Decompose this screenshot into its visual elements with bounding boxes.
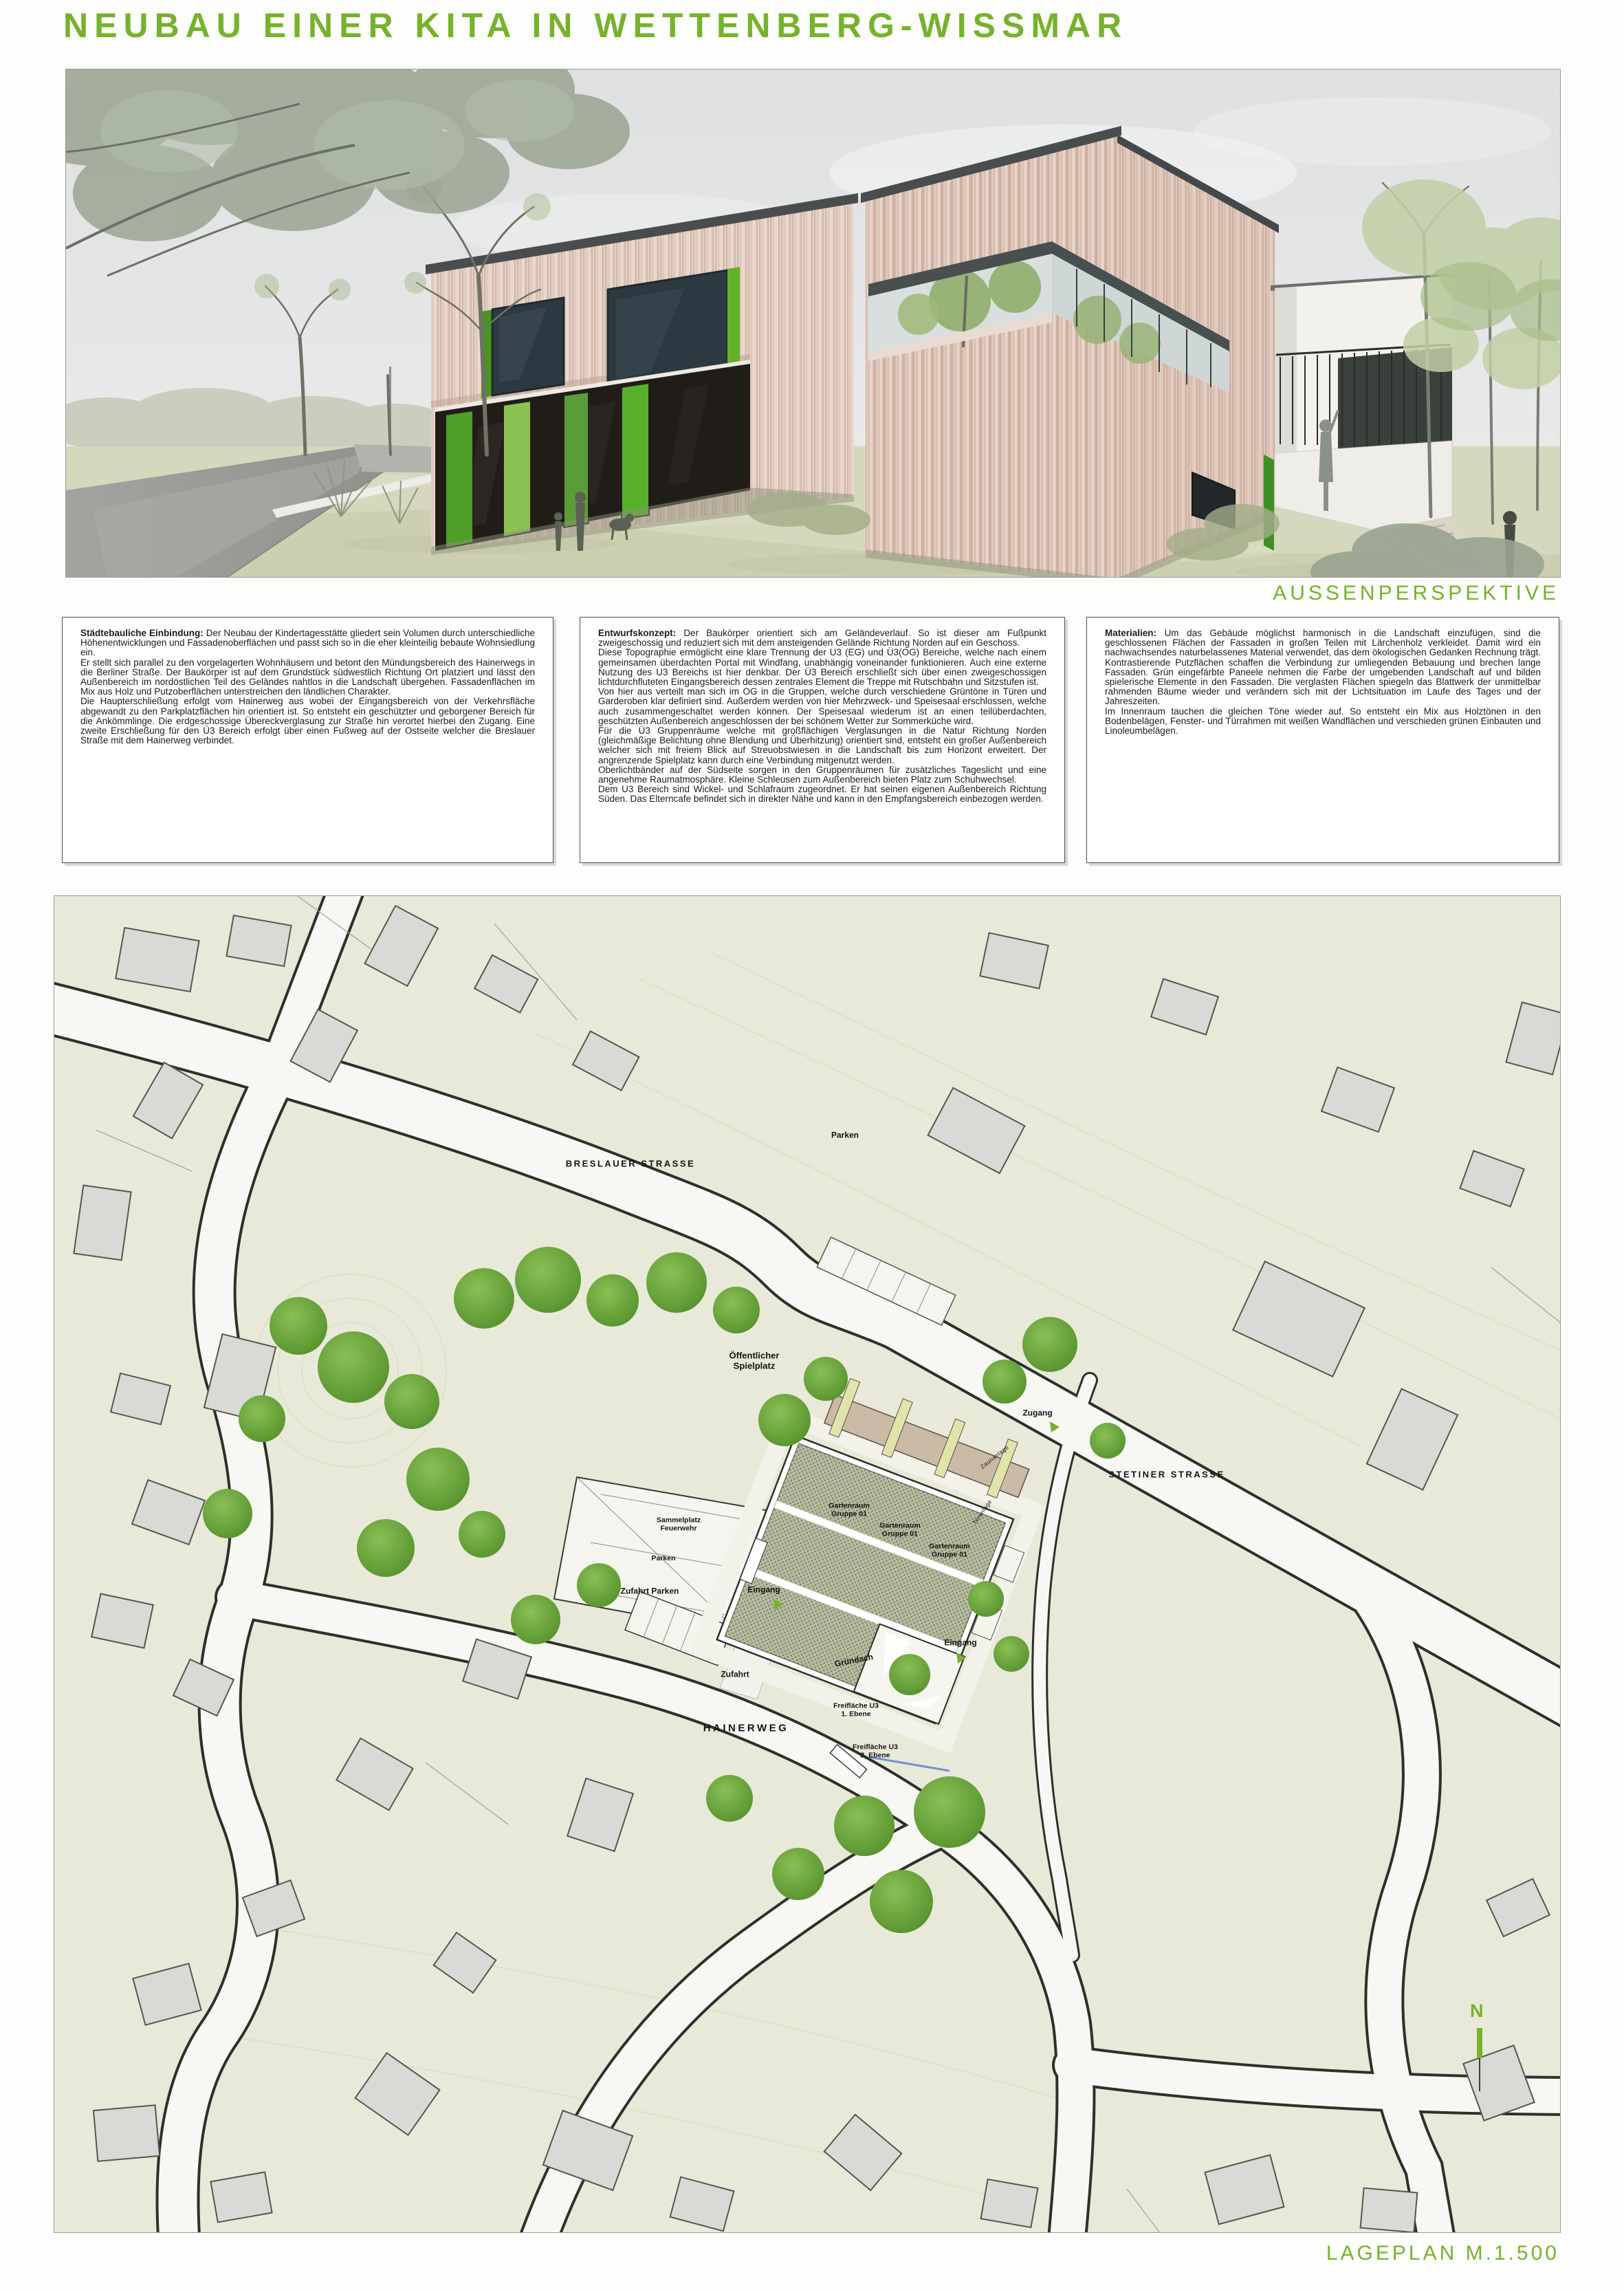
map-label-8: Sammelplatz Feuerwehr xyxy=(657,1516,701,1533)
map-label-4: STETINER STRASSE xyxy=(1108,1470,1225,1481)
column-body: Der Baukörper orientiert sich am Gelände… xyxy=(598,628,1046,804)
text-column-entwurf: Entwurfskonzept: Der Baukörper orientier… xyxy=(580,617,1065,863)
map-label-2: Öffentlicher Spielplatz xyxy=(729,1351,780,1371)
siteplan-labels: ParkenBRESLAUER STRASSEÖffentlicher Spie… xyxy=(54,896,1560,2232)
map-label-18: Zaunanlage xyxy=(979,1444,1010,1470)
column-heading: Städtebauliche Einbindung: xyxy=(80,628,204,638)
map-label-3: Zugang xyxy=(1022,1408,1052,1417)
perspective-rendering-graphic xyxy=(66,69,1560,577)
perspective-caption: AUSSENPERSPEKTIVE xyxy=(1273,582,1559,605)
map-label-19: Toranlage xyxy=(972,1498,994,1526)
presentation-board: NEUBAU EINER KITA IN WETTENBERG-WISSMAR xyxy=(0,0,1624,2290)
column-paragraph: Materialien: Um das Gebäude möglichst ha… xyxy=(1105,629,1541,736)
text-column-staedtebau: Städtebauliche Einbindung: Der Neubau de… xyxy=(62,617,553,863)
map-label-14: Zufahrt xyxy=(721,1670,749,1679)
map-label-15: HAINERWEG xyxy=(703,1723,789,1735)
map-label-17: Freifläche U3 2. Ebene xyxy=(853,1743,898,1760)
column-body: Der Neubau der Kindertagesstätte glieder… xyxy=(80,628,535,745)
map-label-16: Freifläche U3 1. Ebene xyxy=(833,1702,879,1719)
map-label-0: Parken xyxy=(831,1131,859,1139)
siteplan-figure: ParkenBRESLAUER STRASSEÖffentlicher Spie… xyxy=(54,895,1561,2233)
page-title: NEUBAU EINER KITA IN WETTENBERG-WISSMAR xyxy=(63,6,1128,45)
map-label-11: Eingang xyxy=(747,1585,780,1594)
column-heading: Materialien: xyxy=(1105,628,1156,638)
map-label-13: Gründach xyxy=(834,1653,874,1669)
column-heading: Entwurfskonzept: xyxy=(598,628,676,638)
column-paragraph: Entwurfskonzept: Der Baukörper orientier… xyxy=(598,629,1046,805)
map-label-12: Eingang xyxy=(944,1638,976,1647)
perspective-figure xyxy=(65,69,1561,578)
north-arrow: N xyxy=(1470,2000,1484,2022)
column-body: Um das Gebäude möglichst harmonisch in d… xyxy=(1105,628,1541,736)
map-label-6: Gartenraum Gruppe 01 xyxy=(879,1522,921,1538)
north-arrow-line xyxy=(1479,2058,1480,2091)
north-arrow-bar xyxy=(1477,2028,1482,2058)
text-column-materialien: Materialien: Um das Gebäude möglichst ha… xyxy=(1086,617,1559,863)
map-label-1: BRESLAUER STRASSE xyxy=(566,1159,695,1170)
map-label-9: Parken xyxy=(651,1555,675,1563)
column-paragraph: Städtebauliche Einbindung: Der Neubau de… xyxy=(80,629,535,745)
map-label-5: Gartenraum Gruppe 01 xyxy=(829,1502,870,1518)
siteplan-caption: LAGEPLAN M.1.500 xyxy=(1326,2242,1559,2265)
map-label-7: Gartenraum Gruppe 01 xyxy=(929,1542,970,1559)
map-label-10: Zufahrt Parken xyxy=(621,1586,679,1595)
